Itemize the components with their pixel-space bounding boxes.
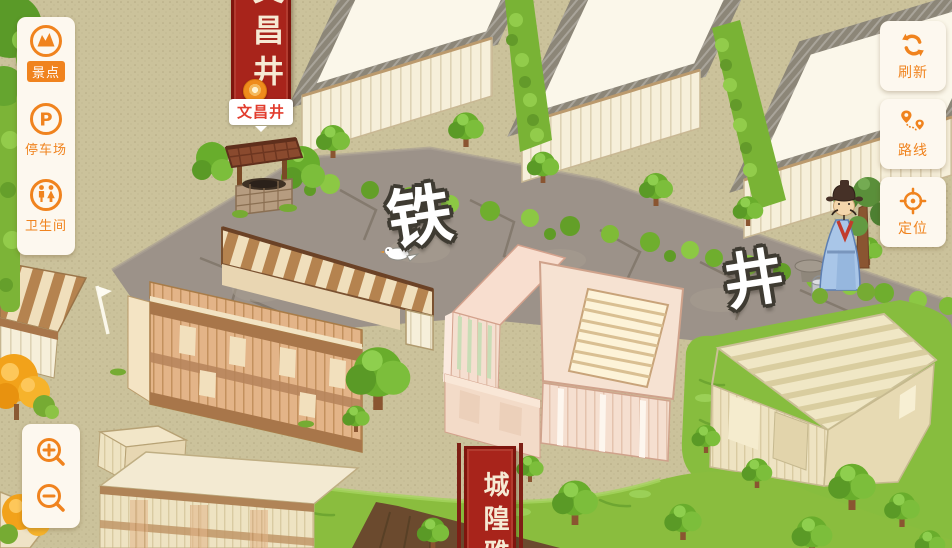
magnifier-minus-icon	[33, 481, 69, 517]
route-button[interactable]: 路线	[880, 99, 946, 169]
locate-icon	[898, 186, 928, 216]
restroom-icon	[28, 177, 64, 213]
route-label: 路线	[898, 140, 928, 160]
chenghuang-banner: 城隍雅	[464, 446, 516, 548]
scenic-spot-icon	[28, 23, 64, 59]
zoom-out-button[interactable]	[33, 481, 69, 517]
refresh-icon	[898, 30, 928, 60]
sidebar-label-restroom: 卫生间	[25, 215, 67, 234]
sidebar-item-parking[interactable]: P 停车场	[25, 101, 67, 158]
locate-button[interactable]: 定位	[880, 177, 946, 247]
street-name-char-2: 井	[720, 246, 789, 315]
zoom-in-button[interactable]	[33, 435, 69, 471]
scenic-map-app: 铁 井 文昌井 城隍雅 文昌井 景点 P 停车场 卫生间	[0, 0, 952, 548]
street-name-char-1: 铁	[383, 181, 456, 254]
refresh-button[interactable]: 刷新	[880, 21, 946, 91]
sidebar-item-scenic-spots[interactable]: 景点	[27, 23, 65, 82]
sidebar: 景点 P 停车场 卫生间	[17, 17, 75, 255]
route-icon	[898, 108, 928, 138]
locate-label: 定位	[898, 218, 928, 238]
zoom-controls	[22, 424, 80, 528]
refresh-label: 刷新	[898, 62, 928, 82]
sidebar-label-parking: 停车场	[25, 139, 67, 158]
parking-icon: P	[28, 101, 64, 137]
magnifier-plus-icon	[33, 435, 69, 471]
sidebar-item-restroom[interactable]: 卫生间	[25, 177, 67, 234]
svg-text:P: P	[39, 110, 52, 131]
sidebar-label-scenic: 景点	[27, 61, 65, 82]
poi-label[interactable]: 文昌井	[229, 99, 293, 125]
